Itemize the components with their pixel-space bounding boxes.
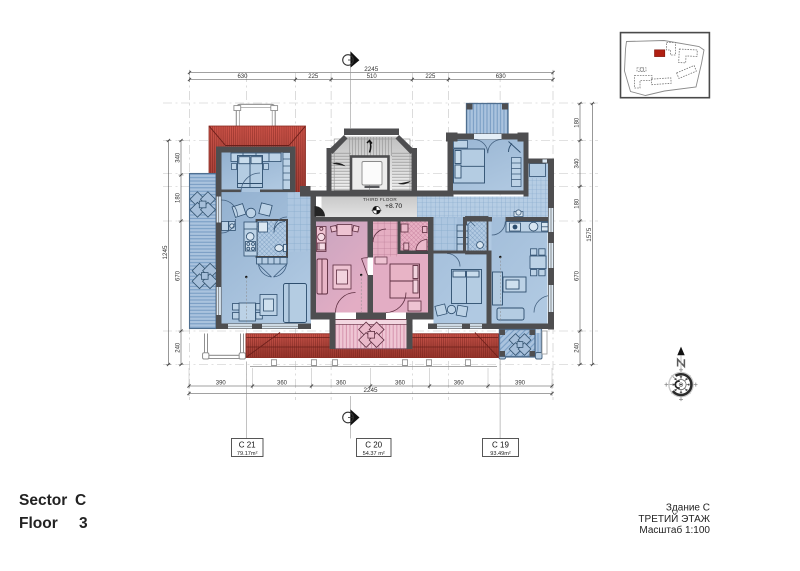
svg-text:54.37 m²: 54.37 m²	[363, 451, 385, 457]
svg-text:225: 225	[425, 74, 436, 80]
svg-text:THIRD FLOOR: THIRD FLOOR	[363, 197, 397, 202]
svg-text:2245: 2245	[363, 387, 378, 394]
svg-text:240: 240	[175, 342, 181, 353]
svg-text:ТРЕТИЙ ЭТАЖ: ТРЕТИЙ ЭТАЖ	[638, 512, 710, 525]
svg-text:360: 360	[454, 380, 465, 386]
svg-text:1575: 1575	[586, 227, 593, 242]
svg-text:240: 240	[574, 342, 580, 353]
svg-text:93.49m²: 93.49m²	[490, 451, 511, 457]
svg-text:630: 630	[496, 74, 507, 80]
svg-text:Sector: Sector	[19, 492, 67, 509]
svg-text:3: 3	[79, 515, 88, 532]
svg-text:390: 390	[216, 380, 227, 386]
svg-text:C: C	[75, 492, 86, 509]
svg-text:360: 360	[277, 380, 288, 386]
svg-text:670: 670	[175, 270, 181, 281]
svg-text:C 20: C 20	[365, 441, 382, 450]
svg-text:510: 510	[367, 74, 378, 80]
svg-text:2245: 2245	[364, 66, 379, 73]
svg-text:C 21: C 21	[239, 441, 256, 450]
svg-text:225: 225	[308, 74, 319, 80]
svg-text:670: 670	[574, 270, 580, 281]
svg-text:180: 180	[175, 192, 181, 203]
svg-text:340: 340	[175, 152, 181, 163]
svg-text:340: 340	[574, 158, 580, 169]
svg-text:180: 180	[574, 117, 580, 128]
svg-text:C 19: C 19	[492, 441, 509, 450]
svg-text:1245: 1245	[162, 245, 169, 260]
svg-text:Масштаб 1:100: Масштаб 1:100	[639, 524, 710, 536]
svg-text:360: 360	[336, 380, 347, 386]
svg-text:+8.70: +8.70	[385, 203, 402, 210]
svg-text:360: 360	[395, 380, 406, 386]
svg-text:79.17m²: 79.17m²	[237, 451, 258, 457]
svg-text:390: 390	[515, 380, 526, 386]
svg-text:Floor: Floor	[19, 515, 58, 532]
svg-text:180: 180	[574, 198, 580, 209]
svg-text:Здание С: Здание С	[666, 503, 710, 514]
svg-text:630: 630	[237, 74, 248, 80]
